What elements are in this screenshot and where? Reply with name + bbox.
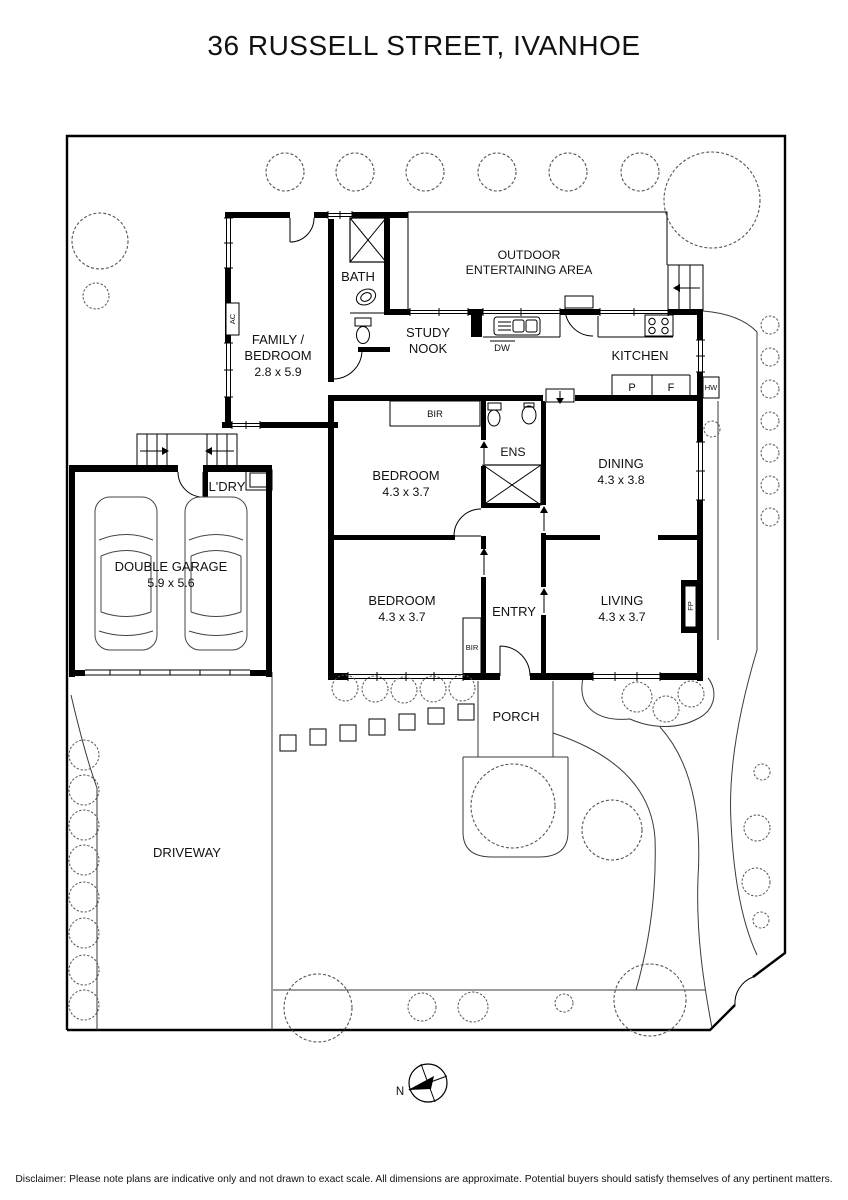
label-bir1: BIR [427, 409, 443, 420]
shrub-icon [754, 764, 770, 780]
garage-door [85, 670, 250, 675]
label-pantry: P [628, 382, 635, 394]
shrub-icon [69, 740, 99, 770]
shrub-icon [744, 815, 770, 841]
room-dims-bedroom1: 4.3 x 3.7 [382, 485, 429, 499]
tree-icon [471, 764, 555, 848]
shrub-icon [753, 912, 769, 928]
room-label-family-2: BEDROOM [244, 348, 311, 363]
room-label-laundry: L'DRY [209, 479, 246, 494]
shrub-icon [761, 508, 779, 526]
room-label-study-1: STUDY [406, 325, 450, 340]
room-label-entry: ENTRY [492, 604, 536, 619]
shrub-icon [549, 153, 587, 191]
shrub-icon [653, 696, 679, 722]
shrub-icon [761, 316, 779, 334]
label-fireplace: FP [686, 601, 695, 611]
laundry-trough-icon [246, 470, 272, 490]
floor-plan-page: 36 RUSSELL STREET, IVANHOE [0, 0, 848, 1200]
shrub-icon [621, 153, 659, 191]
compass-north-label: N [396, 1086, 404, 1098]
label-air-con: AC [228, 313, 237, 324]
north-arrow-icon [408, 1076, 434, 1090]
stairs-icon [137, 434, 237, 468]
shrub-icon [69, 990, 99, 1020]
label-dw: DW [494, 343, 510, 354]
room-label-porch: PORCH [493, 709, 540, 724]
gate-arc [735, 977, 753, 1005]
shrub-icon [761, 412, 779, 430]
disclaimer-text: Disclaimer: Please note plans are indica… [15, 1174, 832, 1185]
room-label-bath: BATH [341, 269, 375, 284]
shrub-icon [742, 868, 770, 896]
opening-arrows [480, 389, 574, 613]
shrub-icon [69, 918, 99, 948]
shower-icon [483, 465, 541, 505]
shrub-icon [622, 682, 652, 712]
tree-icon [72, 213, 128, 269]
toilet-icon [488, 403, 501, 426]
basin-icon [522, 403, 536, 424]
label-fridge: F [668, 382, 675, 394]
shrub-icon [69, 810, 99, 840]
room-labels: FAMILY / BEDROOM 2.8 x 5.9 BATH STUDY NO… [115, 248, 669, 860]
shrub-icon [69, 955, 99, 985]
shower-icon [350, 218, 386, 262]
label-hot-water: HW [705, 383, 718, 392]
room-label-outdoor-2: ENTERTAINING AREA [466, 263, 593, 277]
compass: N [396, 1064, 447, 1102]
shrub-icon [761, 380, 779, 398]
tree-icon [614, 964, 686, 1036]
room-label-living: LIVING [601, 593, 644, 608]
room-dims-bedroom2: 4.3 x 3.7 [378, 610, 425, 624]
shrub-icon [761, 444, 779, 462]
stepping-stones [280, 704, 474, 751]
tree-icon [582, 800, 642, 860]
shrub-icon [761, 476, 779, 494]
toilet-icon [355, 318, 371, 344]
tree-icon [284, 974, 352, 1042]
stairs-icon [668, 265, 703, 310]
room-dims-living: 4.3 x 3.7 [598, 610, 645, 624]
shrub-icon [678, 681, 704, 707]
shrub-icon [406, 153, 444, 191]
floor-plan-image: 36 RUSSELL STREET, IVANHOE [0, 0, 848, 1200]
room-label-bedroom2: BEDROOM [368, 593, 435, 608]
cooktop-icon [645, 315, 673, 336]
sink-icon [494, 317, 540, 335]
shrub-icon [555, 994, 573, 1012]
room-label-outdoor-1: OUTDOOR [498, 248, 561, 262]
room-dims-garage: 5.9 x 5.6 [147, 576, 194, 590]
kitchen-fixtures [483, 315, 719, 398]
tree-icon [664, 152, 760, 248]
shrub-icon [336, 153, 374, 191]
room-label-kitchen: KITCHEN [611, 348, 668, 363]
shrub-icon [83, 283, 109, 309]
room-label-bedroom1: BEDROOM [372, 468, 439, 483]
room-dims-dining: 4.3 x 3.8 [597, 473, 644, 487]
room-label-family-1: FAMILY / [252, 332, 305, 347]
shrub-icon [478, 153, 516, 191]
room-label-garage: DOUBLE GARAGE [115, 559, 228, 574]
basin-icon [354, 286, 378, 308]
shrub-icon [266, 153, 304, 191]
shrub-icon [458, 992, 488, 1022]
room-label-dining: DINING [598, 456, 644, 471]
shrub-icon [69, 882, 99, 912]
page-title: 36 RUSSELL STREET, IVANHOE [207, 30, 640, 61]
room-label-driveway: DRIVEWAY [153, 845, 221, 860]
shrub-icon [408, 993, 436, 1021]
room-label-ens: ENS [500, 445, 525, 459]
label-bir2: BIR [466, 643, 479, 652]
shrub-icon [69, 845, 99, 875]
room-label-study-2: NOOK [409, 341, 448, 356]
shrub-icon [761, 348, 779, 366]
room-dims-family: 2.8 x 5.9 [254, 365, 301, 379]
